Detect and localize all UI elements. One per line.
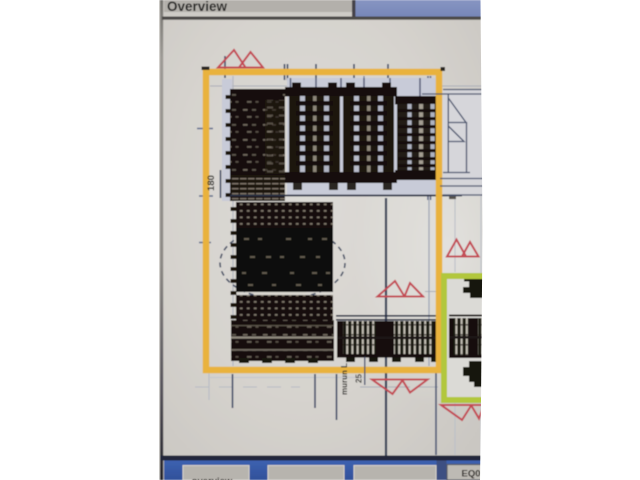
svg-text:180: 180 [206,175,217,191]
svg-text:murun L: murun L [340,363,349,395]
svg-text:25: 25 [355,374,364,383]
svg-text:overview: overview [192,476,233,480]
svg-text:EQ0: EQ0 [462,469,481,480]
svg-text:Overview: Overview [167,0,228,14]
